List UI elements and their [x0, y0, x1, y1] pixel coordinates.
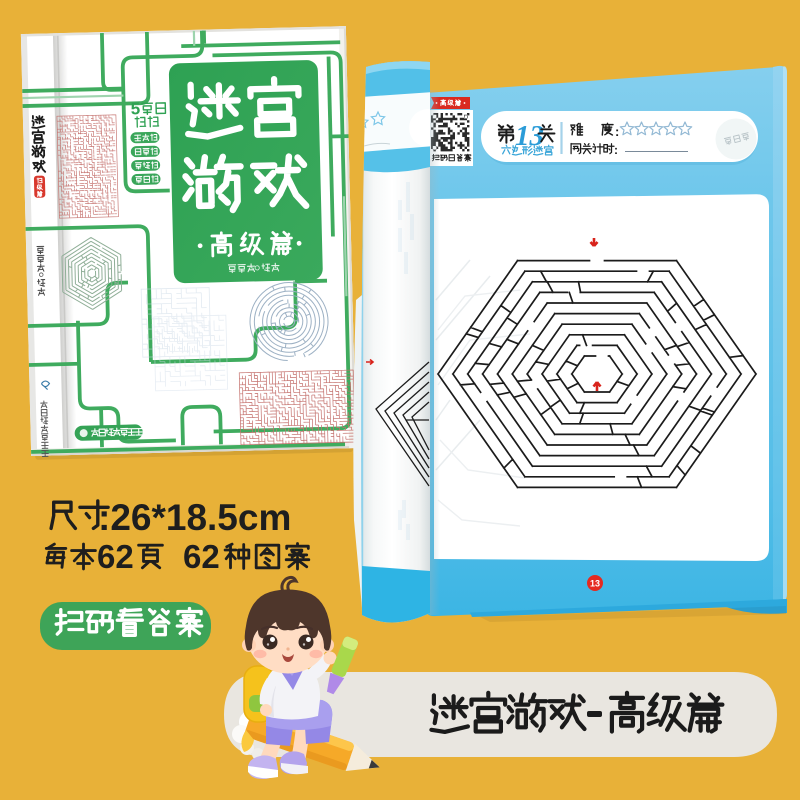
svg-text::: :: [614, 143, 618, 157]
svg-text:62: 62: [183, 538, 220, 575]
svg-text::26*18.5cm: :26*18.5cm: [98, 497, 291, 538]
svg-text:13: 13: [590, 579, 600, 589]
svg-text:62: 62: [97, 538, 134, 575]
svg-text:5: 5: [131, 99, 141, 118]
svg-text::: :: [615, 124, 619, 139]
